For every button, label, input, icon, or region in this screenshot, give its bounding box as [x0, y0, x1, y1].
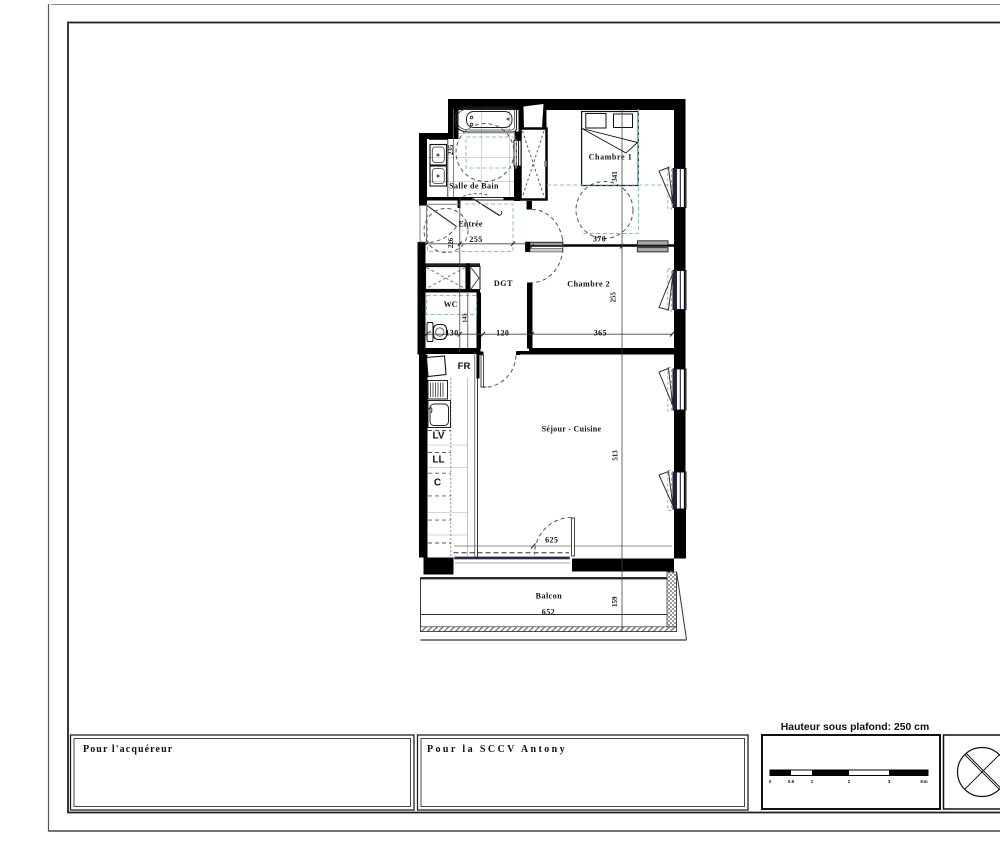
svg-text:Pour la SCCV Antony: Pour la SCCV Antony [427, 744, 567, 755]
svg-text:LL: LL [432, 455, 444, 466]
svg-text:LV: LV [432, 431, 444, 442]
svg-text:235: 235 [447, 144, 455, 155]
svg-text:Hauteur sous plafond: 250 cm: Hauteur sous plafond: 250 cm [781, 722, 929, 733]
svg-text:Séjour - Cuisine: Séjour - Cuisine [542, 424, 602, 433]
svg-text:255: 255 [469, 235, 482, 244]
svg-text:Chambre 1: Chambre 1 [589, 153, 633, 162]
svg-text:Salle de Bain: Salle de Bain [449, 182, 499, 191]
svg-text:625: 625 [545, 536, 558, 545]
svg-text:145: 145 [462, 312, 469, 323]
svg-text:159: 159 [611, 596, 619, 607]
svg-text:FR: FR [458, 361, 471, 372]
svg-text:WC: WC [444, 300, 458, 309]
svg-text:652: 652 [542, 608, 555, 617]
svg-text:0.5: 0.5 [788, 779, 795, 784]
svg-text:Balcon: Balcon [536, 592, 563, 601]
svg-text:341: 341 [611, 171, 619, 182]
svg-text:Pour l'acquéreur: Pour l'acquéreur [83, 744, 173, 755]
svg-text:DGT: DGT [494, 279, 513, 288]
svg-text:365: 365 [594, 329, 607, 338]
svg-text:370: 370 [593, 235, 606, 244]
svg-text:Entrée: Entrée [458, 220, 483, 229]
svg-text:130: 130 [445, 328, 458, 337]
svg-text:255: 255 [609, 292, 617, 303]
svg-text:513: 513 [611, 450, 619, 461]
svg-text:120: 120 [496, 329, 509, 338]
svg-text:Chambre 2: Chambre 2 [567, 280, 610, 289]
svg-text:Km: Km [920, 779, 927, 784]
svg-text:226: 226 [447, 237, 455, 248]
svg-text:C: C [434, 478, 441, 489]
